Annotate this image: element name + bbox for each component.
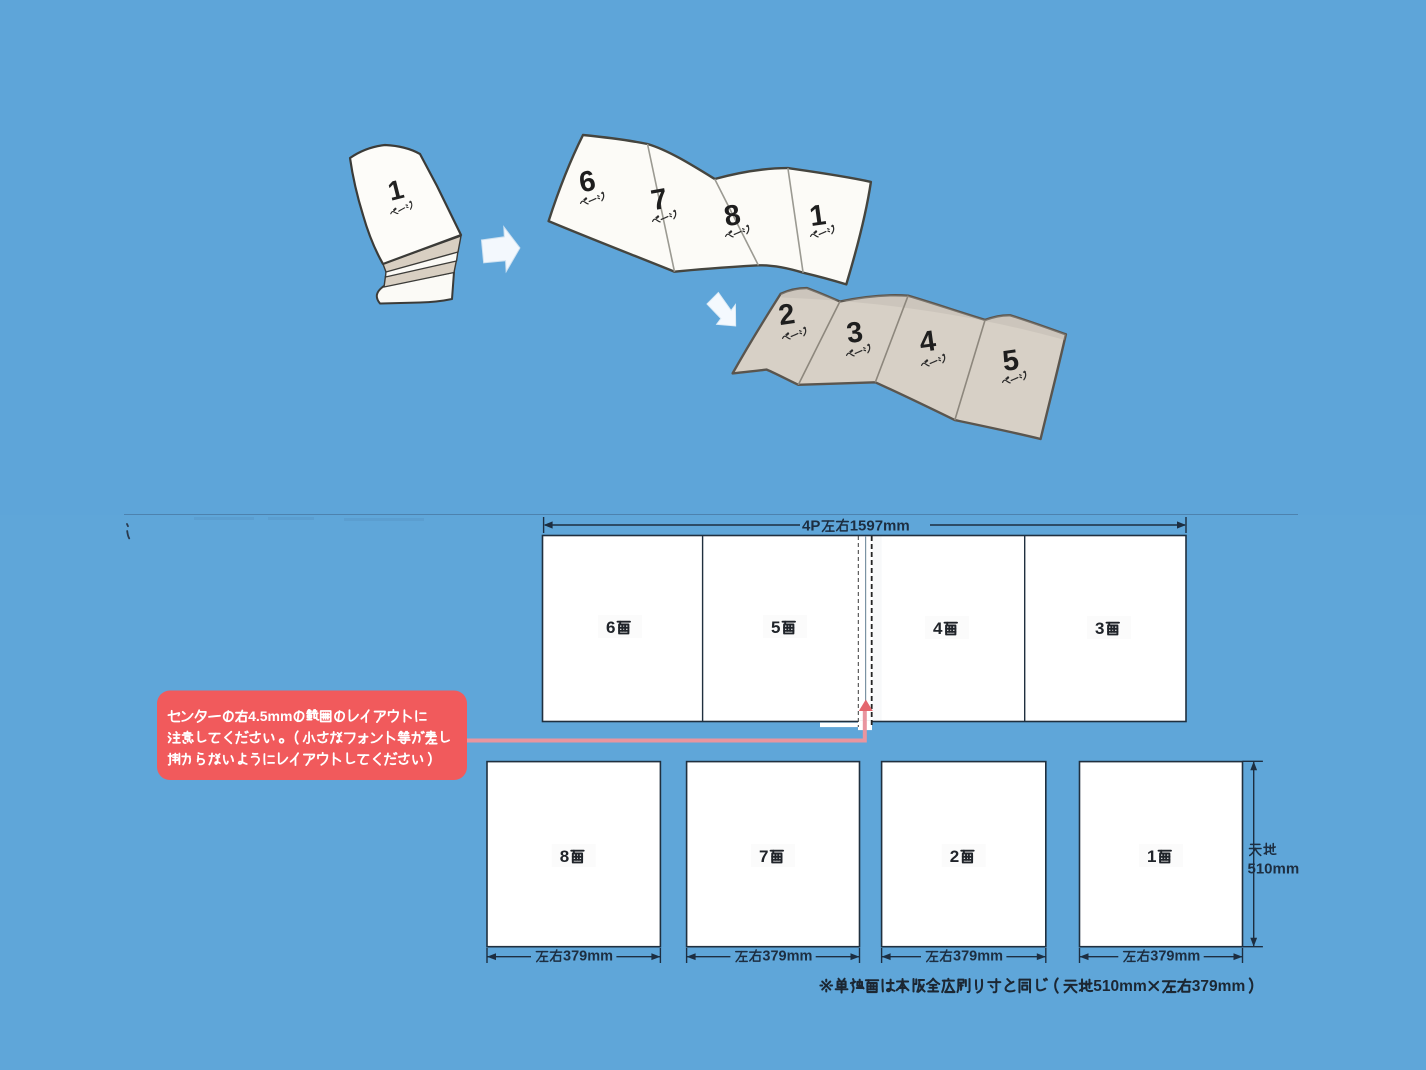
svg-text:4P: 4P [802,517,820,534]
svg-text:4: 4 [933,619,943,638]
svg-text:510mm: 510mm [1093,978,1146,995]
svg-text:379mm: 379mm [762,949,812,965]
svg-text:4.5mm: 4.5mm [248,708,292,724]
svg-text:1: 1 [1147,847,1156,866]
svg-text:379mm: 379mm [563,949,613,965]
svg-text:3: 3 [1095,619,1104,638]
svg-text:379mm: 379mm [953,949,1003,965]
svg-text:5: 5 [771,618,780,637]
svg-text:379mm: 379mm [1150,949,1200,965]
svg-text:510mm: 510mm [1248,861,1300,878]
svg-text:7: 7 [759,847,768,866]
svg-text:1597mm: 1597mm [850,517,910,534]
svg-text:379mm: 379mm [1192,978,1245,995]
svg-text:6: 6 [606,618,615,637]
svg-text:2: 2 [950,847,959,866]
svg-text:8: 8 [560,847,569,866]
